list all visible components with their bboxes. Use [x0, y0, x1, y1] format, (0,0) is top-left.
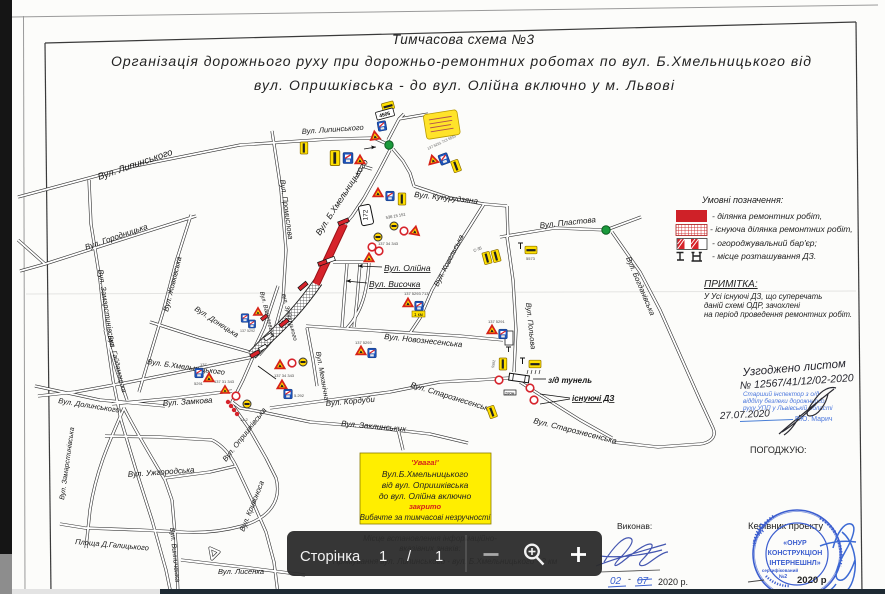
- svg-text:Сторінка: Сторінка: [300, 549, 361, 565]
- svg-text:5573: 5573: [526, 256, 536, 261]
- svg-text:даній схемі ОДР, зачохлені: даній схемі ОДР, зачохлені: [704, 301, 800, 310]
- svg-text:14.2: 14.2: [240, 417, 249, 422]
- svg-text:137 5293 713: 137 5293 713: [404, 291, 429, 296]
- svg-text:'Увага!': 'Увага!': [411, 458, 439, 467]
- svg-text:137 34 343: 137 34 343: [378, 241, 399, 246]
- svg-text:02: 02: [610, 576, 622, 587]
- svg-text:ІНТЕРНЕШНЛ»: ІНТЕРНЕШНЛ»: [769, 560, 820, 567]
- svg-text:- місце розташування ДЗ.: - місце розташування ДЗ.: [712, 251, 816, 261]
- svg-text:2020 р: 2020 р: [797, 575, 827, 586]
- svg-text:від вул. Опришківська: від вул. Опришківська: [382, 480, 469, 490]
- svg-text:Старший інспектор з о/д: Старший інспектор з о/д: [743, 390, 820, 398]
- svg-text:існуючі ДЗ: існуючі ДЗ: [572, 394, 614, 403]
- svg-text:Організація дорожнього руху пр: Організація дорожнього руху при дорожньо…: [111, 53, 811, 69]
- svg-text:- існуюча ділянка ремонтних ро: - існуюча ділянка ремонтних робіт,: [710, 224, 853, 234]
- svg-text:137 31 343: 137 31 343: [214, 379, 235, 384]
- svg-text:1 км: 1 км: [414, 312, 423, 317]
- svg-text:Вул. Лисенка: Вул. Лисенка: [218, 567, 264, 576]
- svg-text:Р.Ю. Марич: Р.Ю. Марич: [795, 416, 833, 423]
- svg-text:відділу безпеки дорожнього: відділу безпеки дорожнього: [743, 397, 825, 405]
- svg-text:5291: 5291: [194, 381, 204, 386]
- svg-text:-: -: [628, 574, 631, 584]
- svg-text:ПОГОДЖУЮ:: ПОГОДЖУЮ:: [750, 445, 807, 455]
- svg-text:- огороджувальний бар'єр;: - огороджувальний бар'єр;: [712, 238, 818, 248]
- svg-text:Вул. Олійна: Вул. Олійна: [384, 263, 431, 273]
- svg-text:ПРИМІТКА:: ПРИМІТКА:: [704, 279, 758, 290]
- svg-text:Виконав:: Виконав:: [617, 521, 652, 531]
- svg-text:закрито: закрито: [409, 502, 442, 511]
- svg-text:5.292: 5.292: [294, 393, 305, 398]
- svg-text:У Усі існуючі ДЗ, що суперечат: У Усі існуючі ДЗ, що суперечать: [703, 292, 822, 301]
- svg-text:137 34 343: 137 34 343: [274, 373, 295, 378]
- svg-text:№2: №2: [779, 574, 788, 580]
- svg-text:сертифікований: сертифікований: [762, 567, 798, 573]
- svg-text:до вул. Олійна включно: до вул. Олійна включно: [379, 491, 472, 501]
- svg-text:Вул.Б.Хмельницького: Вул.Б.Хмельницького: [382, 469, 469, 479]
- svg-text:КОНСТРУКЦІОН: КОНСТРУКЦІОН: [768, 550, 823, 557]
- svg-text:Вибачте за тимчасові незручнос: Вибачте за тимчасові незручності: [360, 513, 491, 522]
- svg-text:137 5291: 137 5291: [488, 319, 505, 324]
- svg-text:на період проведення ремонтних: на період проведення ремонтних робіт.: [704, 310, 852, 319]
- svg-text:Умовні позначення:: Умовні позначення:: [701, 195, 784, 205]
- svg-text:Тимчасова схема №3: Тимчасова схема №3: [392, 32, 534, 47]
- svg-text:з/д тунель: з/д тунель: [548, 376, 592, 385]
- svg-text:137: 137: [200, 362, 207, 367]
- svg-text:1: 1: [379, 549, 387, 565]
- svg-text:137 5292: 137 5292: [240, 329, 255, 333]
- svg-text:280м: 280м: [505, 391, 515, 396]
- svg-text:1: 1: [435, 549, 443, 565]
- svg-text:2020 р.: 2020 р.: [658, 577, 688, 587]
- svg-text:Вул. Височка: Вул. Височка: [369, 279, 421, 289]
- svg-text:«ОНУР: «ОНУР: [783, 540, 807, 547]
- svg-text:- ділянка ремонтних робіт,: - ділянка ремонтних робіт,: [712, 211, 822, 221]
- svg-text:137 5293: 137 5293: [355, 340, 372, 345]
- svg-text:172: 172: [363, 209, 370, 220]
- svg-text:вул. Опришківська - до вул. Ол: вул. Опришківська - до вул. Олійна включ…: [254, 77, 675, 93]
